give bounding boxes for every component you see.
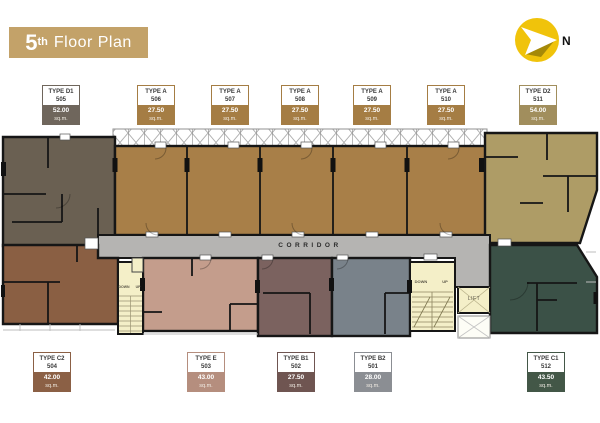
unit-type: TYPE A xyxy=(428,88,464,96)
unit-type: TYPE C1 xyxy=(528,355,564,363)
unit-sqm: sq.m. xyxy=(212,115,248,123)
unit-area: 27.50 xyxy=(278,373,314,382)
unit-label-512: TYPE C1512 43.50sq.m. xyxy=(527,352,565,392)
unit-type: TYPE A xyxy=(282,88,318,96)
unit-label-505: TYPE D1505 52.00sq.m. xyxy=(42,85,80,125)
unit-sqm: sq.m. xyxy=(34,382,70,390)
stairs-right-up-label: UP xyxy=(437,279,453,284)
unit-type: TYPE D2 xyxy=(520,88,556,96)
unit-504-area xyxy=(3,245,118,324)
unit-number: 502 xyxy=(278,363,314,371)
unit-number: 505 xyxy=(43,96,79,104)
unit-number: 503 xyxy=(188,363,224,371)
corridor-label: CORRIDOR xyxy=(245,242,375,249)
unit-sqm: sq.m. xyxy=(278,382,314,390)
unit-label-506: TYPE A506 27.50sq.m. xyxy=(137,85,175,125)
unit-number: 510 xyxy=(428,96,464,104)
unit-sqm: sq.m. xyxy=(354,115,390,123)
lift-label: LIFT xyxy=(458,296,490,302)
unit-label-511: TYPE D2511 54.00sq.m. xyxy=(519,85,557,125)
unit-sqm: sq.m. xyxy=(428,115,464,123)
unit-label-502: TYPE B1502 27.50sq.m. xyxy=(277,352,315,392)
unit-511-area xyxy=(485,133,597,243)
stairs-right-down-label: DOWN xyxy=(411,279,431,284)
unit-sqm: sq.m. xyxy=(138,115,174,123)
unit-type: TYPE A xyxy=(212,88,248,96)
unit-number: 508 xyxy=(282,96,318,104)
unit-type: TYPE A xyxy=(138,88,174,96)
unit-501-area xyxy=(332,258,410,336)
unit-number: 507 xyxy=(212,96,248,104)
unit-number: 512 xyxy=(528,363,564,371)
unit-area: 54.00 xyxy=(520,106,556,115)
unit-area: 52.00 xyxy=(43,106,79,115)
unit-label-509: TYPE A509 27.50sq.m. xyxy=(353,85,391,125)
unit-area: 27.50 xyxy=(212,106,248,115)
unit-502-area xyxy=(258,258,332,336)
unit-label-501: TYPE B2501 28.00sq.m. xyxy=(354,352,392,392)
unit-label-508: TYPE A508 27.50sq.m. xyxy=(281,85,319,125)
unit-number: 511 xyxy=(520,96,556,104)
unit-sqm: sq.m. xyxy=(528,382,564,390)
unit-label-507: TYPE A507 27.50sq.m. xyxy=(211,85,249,125)
stairs-left-up-label: UP xyxy=(132,285,144,289)
unit-type: TYPE D1 xyxy=(43,88,79,96)
unit-512-area xyxy=(490,245,597,333)
unit-area: 27.50 xyxy=(138,106,174,115)
unit-label-503: TYPE E503 43.00sq.m. xyxy=(187,352,225,392)
unit-area: 27.50 xyxy=(354,106,390,115)
unit-label-504: TYPE C2504 42.00sq.m. xyxy=(33,352,71,392)
unit-type: TYPE A xyxy=(354,88,390,96)
unit-number: 509 xyxy=(354,96,390,104)
unit-type: TYPE C2 xyxy=(34,355,70,363)
unit-type: TYPE B2 xyxy=(355,355,391,363)
unit-area: 27.50 xyxy=(282,106,318,115)
unit-area: 28.00 xyxy=(355,373,391,382)
unit-area: 27.50 xyxy=(428,106,464,115)
hose-cabinet xyxy=(132,258,143,272)
unit-number: 506 xyxy=(138,96,174,104)
stairs-left-down-label: DOWN xyxy=(116,285,132,289)
unit-type: TYPE B1 xyxy=(278,355,314,363)
unit-area: 43.00 xyxy=(188,373,224,382)
unit-sqm: sq.m. xyxy=(188,382,224,390)
unit-area: 43.50 xyxy=(528,373,564,382)
unit-number: 501 xyxy=(355,363,391,371)
unit-sqm: sq.m. xyxy=(282,115,318,123)
unit-area: 42.00 xyxy=(34,373,70,382)
unit-sqm: sq.m. xyxy=(43,115,79,123)
floor-plan-page: 5th Floor Plan N xyxy=(0,0,600,423)
unit-label-510: TYPE A510 27.50sq.m. xyxy=(427,85,465,125)
unit-sqm: sq.m. xyxy=(355,382,391,390)
unit-sqm: sq.m. xyxy=(520,115,556,123)
unit-type: TYPE E xyxy=(188,355,224,363)
stairwell-right xyxy=(410,262,455,331)
unit-number: 504 xyxy=(34,363,70,371)
